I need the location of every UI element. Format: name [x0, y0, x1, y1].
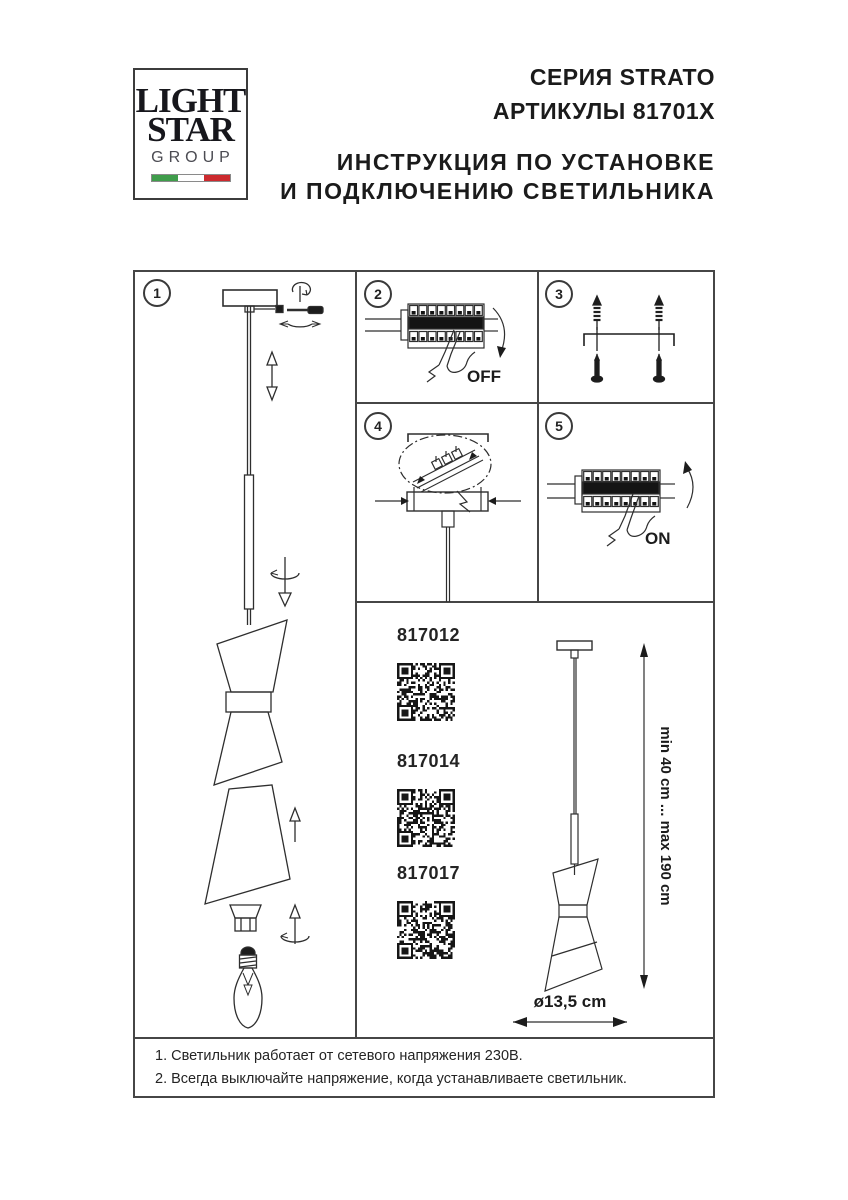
italian-flag-bar — [151, 174, 231, 182]
note-2: 2. Всегда выключайте напряжение, когда у… — [155, 1068, 713, 1091]
header-instruction-block: ИНСТРУКЦИЯ ПО УСТАНОВКЕ И ПОДКЛЮЧЕНИЮ СВ… — [280, 148, 715, 206]
anchor-left — [592, 355, 603, 382]
upper-shade — [214, 620, 287, 785]
flag-green-stripe — [152, 175, 178, 181]
step2-panel: 2 — [357, 272, 539, 404]
lower-shade — [205, 785, 290, 904]
light-bulb — [234, 947, 262, 1028]
logo-word-star: STAR — [147, 115, 234, 144]
series-title: СЕРИЯ STRATO — [493, 60, 715, 94]
bulb-screw-arrow — [281, 905, 309, 944]
height-label: min 40 cm ... max 190 cm — [657, 726, 674, 905]
flag-red-stripe — [204, 175, 230, 181]
rotate-on-arrow — [683, 461, 693, 508]
note-1: 1. Светильник работает от сетевого напря… — [155, 1045, 713, 1068]
articles-title: АРТИКУЛЫ 81701X — [493, 94, 715, 128]
height-adjust-arrow — [267, 352, 277, 400]
ceiling-bracket — [408, 434, 488, 442]
lamp-socket — [230, 905, 261, 931]
step1-assembly-drawing — [135, 272, 357, 1037]
logo-word-group: GROUP — [151, 149, 235, 167]
notes-panel: 1. Светильник работает от сетевого напря… — [135, 1037, 713, 1096]
rotate-arrow — [271, 557, 299, 606]
callout-pointer — [457, 491, 470, 512]
height-dimension — [640, 643, 648, 989]
step4-number-badge: 4 — [364, 412, 392, 440]
off-label: OFF — [467, 367, 501, 386]
step3-number-badge: 3 — [545, 280, 573, 308]
rotate-off-arrow — [493, 308, 506, 358]
center-lines — [597, 346, 659, 362]
shade-mount-arrow — [290, 808, 300, 842]
header-series-block: СЕРИЯ STRATO АРТИКУЛЫ 81701X — [493, 60, 715, 128]
step4-panel: 4 — [357, 404, 539, 603]
diameter-dimension — [513, 1017, 627, 1027]
instruction-sheet: LIGHT STAR GROUP СЕРИЯ STRATO АРТИКУЛЫ 8… — [0, 0, 848, 1200]
canopy — [407, 487, 488, 602]
step1-panel: 1 — [135, 272, 357, 1037]
products-panel: 817012 817014 817017 — [357, 603, 713, 1037]
screw-right — [655, 296, 663, 330]
step5-panel: 5 — [539, 404, 713, 603]
on-label: ON — [645, 529, 671, 548]
terminal-block-detail — [413, 446, 483, 492]
screw-left — [593, 296, 601, 330]
screwdriver-icon — [254, 283, 323, 327]
suspension-rod — [245, 306, 254, 625]
step1-number-badge: 1 — [143, 279, 171, 307]
lightstar-logo: LIGHT STAR GROUP — [133, 68, 248, 200]
push-arrows — [375, 497, 521, 505]
pendant-dimensions-drawing: ø13,5 cm min 40 cm ... max 190 cm — [357, 603, 713, 1037]
diameter-label: ø13,5 cm — [534, 992, 607, 1011]
step5-number-badge: 5 — [545, 412, 573, 440]
flag-white-stripe — [178, 175, 204, 181]
anchor-right — [654, 355, 665, 382]
mounting-bracket — [584, 327, 674, 346]
pendant-lamp — [545, 641, 602, 991]
instruction-grid: 1 — [133, 270, 715, 1098]
instruction-title-line1: ИНСТРУКЦИЯ ПО УСТАНОВКЕ — [280, 148, 715, 177]
step3-panel: 3 — [539, 272, 713, 404]
instruction-title-line2: И ПОДКЛЮЧЕНИЮ СВЕТИЛЬНИКА — [280, 177, 715, 206]
step2-number-badge: 2 — [364, 280, 392, 308]
